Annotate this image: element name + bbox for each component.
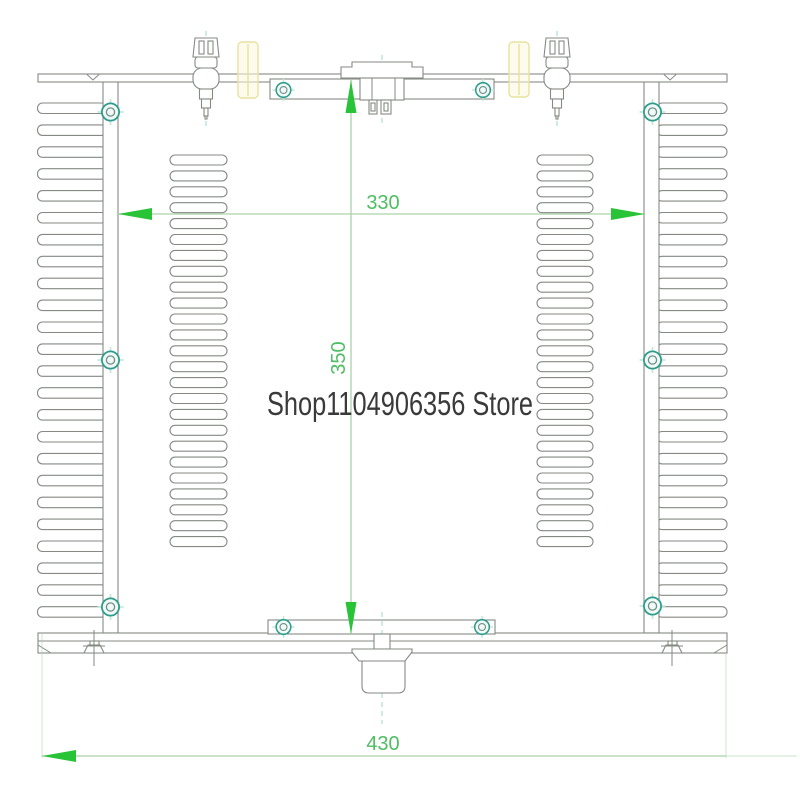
binding-post-pin: [555, 108, 559, 116]
binding-post-pin-tip: [205, 116, 207, 119]
vent-slot: [170, 521, 227, 531]
heatsink-fin: [657, 497, 727, 508]
binding-post-shaft: [200, 89, 213, 99]
vent-slot: [537, 155, 593, 165]
heatsink-fin: [38, 585, 107, 596]
heatsink-fin: [657, 432, 727, 443]
vent-slot: [170, 394, 227, 404]
vent-slot: [537, 219, 593, 229]
heatsink-fin: [657, 278, 727, 289]
vent-slot: [537, 330, 593, 340]
heatsink-fin: [657, 344, 727, 355]
binding-post-body: [544, 68, 570, 89]
binding-post-collar: [546, 57, 568, 68]
vent-slot: [170, 298, 227, 308]
heatsink-fin: [38, 432, 107, 443]
binding-post-cap: [193, 38, 219, 57]
heatsink-fin: [38, 234, 107, 245]
binding-post-pin-tip: [556, 116, 558, 119]
vent-slot: [170, 330, 227, 340]
heatsink-fin: [38, 410, 107, 421]
vent-slot: [170, 409, 227, 419]
binding-post-pin: [204, 108, 208, 116]
vent-slot: [170, 441, 227, 451]
vent-slot: [170, 489, 227, 499]
vent-slot: [170, 266, 227, 276]
binding-post-cap: [544, 38, 570, 57]
power-inlet-plate: [341, 62, 423, 78]
heatsink-fin: [38, 388, 107, 399]
heatsink-fin: [657, 300, 727, 311]
vent-slot: [537, 457, 593, 467]
binding-post-shaft-step: [553, 99, 562, 108]
heatsink-left: [38, 103, 107, 617]
vent-slot: [170, 282, 227, 292]
heatsink-fin: [38, 278, 107, 289]
power-inlet-terminal-slot: [384, 103, 388, 111]
bottom-connector-body: [362, 661, 405, 693]
vent-slot: [537, 537, 593, 547]
vent-slot: [170, 235, 227, 245]
vent-slot: [537, 171, 593, 181]
vent-slot: [537, 235, 593, 245]
vent-slot: [537, 298, 593, 308]
vent-slot: [170, 362, 227, 372]
vent-slot: [170, 537, 227, 547]
heatsink-fin: [657, 519, 727, 530]
power-inlet-body: [360, 78, 404, 100]
binding-post-shaft-step: [202, 99, 211, 108]
vent-slot: [537, 409, 593, 419]
heatsink-fin: [38, 475, 107, 486]
vent-slot: [537, 505, 593, 515]
vent-slot: [537, 489, 593, 499]
binding-post-cap-slot: [199, 41, 204, 54]
store-watermark: Shop1104906356 Store: [267, 385, 533, 422]
heatsink-fin: [657, 607, 727, 618]
binding-post-body: [193, 68, 219, 89]
arrow-left-icon: [42, 750, 76, 762]
vent-slot: [170, 457, 227, 467]
vent-slot: [537, 473, 593, 483]
heatsink-fin: [38, 519, 107, 530]
heatsink-fin: [38, 607, 107, 618]
heatsink-fin: [657, 475, 727, 486]
heatsink-fin: [38, 344, 107, 355]
vent-slot: [537, 425, 593, 435]
bottom-connector-flange: [352, 649, 412, 661]
heatsink-fin: [38, 366, 107, 377]
heatsink-fin: [657, 213, 727, 224]
heatsink-fin: [38, 125, 107, 135]
heatsink-fin: [38, 213, 107, 224]
vent-slot: [170, 171, 227, 181]
heatsink-fin: [38, 541, 107, 552]
chassis-outline: [38, 74, 727, 653]
binding-post-right: [544, 31, 570, 126]
power-inlet-terminal-slot: [371, 103, 375, 111]
arrow-right-icon: [611, 208, 645, 220]
heatsink-fin: [38, 453, 107, 464]
binding-post-shaft: [551, 89, 564, 99]
bottom-connector-neck: [374, 634, 390, 649]
arrow-left-icon: [118, 208, 152, 220]
heatsink-fin: [657, 256, 727, 267]
heatsink-fin: [657, 388, 727, 399]
binding-post-cap-slot: [559, 41, 564, 54]
vent-slot: [537, 187, 593, 197]
heatsink-fin: [657, 234, 727, 245]
vent-slot: [170, 155, 227, 165]
heatsink-fin: [38, 497, 107, 508]
vent-slot: [170, 505, 227, 515]
heatsink-fin: [38, 147, 107, 158]
vent-slot: [537, 250, 593, 260]
vent-slot: [170, 314, 227, 324]
heatsink-fin: [38, 300, 107, 311]
vent-slot: [170, 425, 227, 435]
heatsink-fin: [38, 256, 107, 267]
heatsink-fin: [657, 169, 727, 180]
dimension-label-350: 350: [328, 341, 350, 374]
vent-slot: [537, 203, 593, 213]
vent-slot: [537, 282, 593, 292]
heatsink-fin: [657, 147, 727, 158]
binding-post-cap-slot: [550, 41, 555, 54]
binding-post-cap-slot: [208, 41, 213, 54]
heatsink-fin: [38, 191, 107, 202]
dimension-label-330: 330: [366, 192, 399, 214]
vent-slot: [537, 394, 593, 404]
heatsink-fin: [657, 453, 727, 464]
vent-slot: [170, 203, 227, 213]
heatsink-fin: [657, 125, 727, 135]
heatsink-fin: [657, 322, 727, 333]
dimension-chassis-depth: 350: [328, 80, 357, 634]
heatsink-fin: [657, 366, 727, 377]
heatsink-fin: [38, 563, 107, 574]
vent-slot: [537, 521, 593, 531]
heatsink-fin: [38, 103, 107, 114]
heatsink-right: [657, 103, 727, 617]
vent-slot: [537, 378, 593, 388]
amplifier-chassis-technical-drawing: 330 350 430 Shop1104906356 Store: [0, 0, 800, 800]
vent-slot: [170, 219, 227, 229]
vent-slot: [537, 266, 593, 276]
vent-slot: [170, 473, 227, 483]
product-drawing-canvas: 330 350 430 Shop1104906356 Store: [0, 0, 800, 800]
heatsink-fin: [657, 541, 727, 552]
vent-slot: [170, 187, 227, 197]
vent-slot: [170, 346, 227, 356]
heatsink-fin: [38, 169, 107, 180]
vent-slot: [537, 362, 593, 372]
vent-slot: [537, 441, 593, 451]
heatsink-fin: [657, 103, 727, 114]
heatsink-fin: [38, 322, 107, 333]
heatsink-fin: [657, 585, 727, 596]
binding-post-collar: [195, 57, 217, 68]
heatsink-fin: [657, 563, 727, 574]
binding-post-left: [193, 31, 219, 126]
heatsink-fin: [657, 191, 727, 202]
vent-slot: [170, 250, 227, 260]
vent-slot: [537, 314, 593, 324]
vent-slot: [170, 378, 227, 388]
dimension-label-430: 430: [366, 733, 399, 755]
vent-slot: [537, 346, 593, 356]
heatsink-fin: [657, 410, 727, 421]
